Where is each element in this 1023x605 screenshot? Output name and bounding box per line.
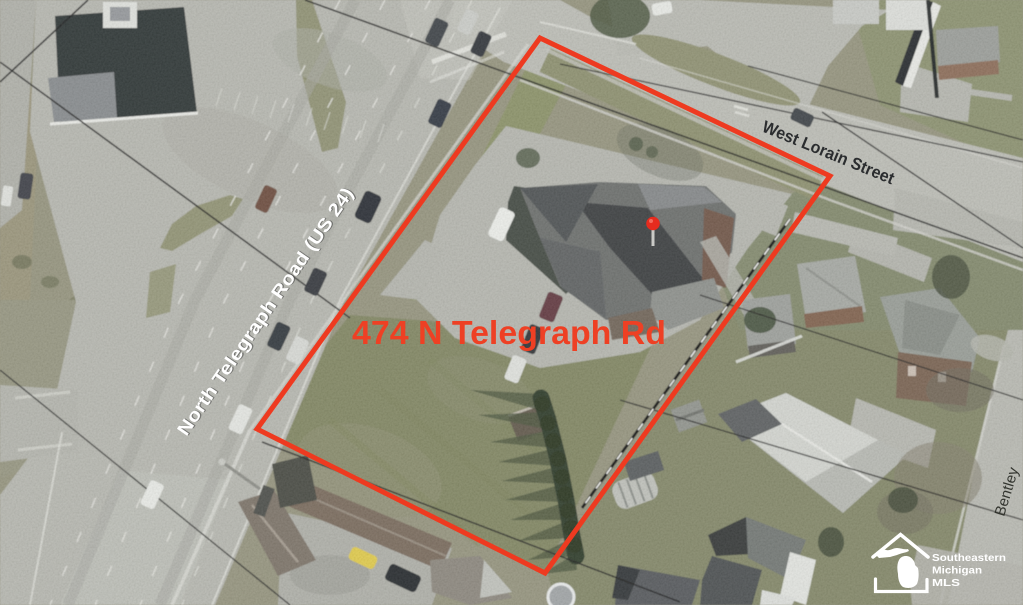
svg-text:Southeastern: Southeastern xyxy=(932,552,1006,564)
svg-text:MLS: MLS xyxy=(932,577,960,589)
svg-text:Michigan: Michigan xyxy=(932,565,982,577)
svg-text:474 N Telegraph Rd: 474 N Telegraph Rd xyxy=(352,314,666,351)
